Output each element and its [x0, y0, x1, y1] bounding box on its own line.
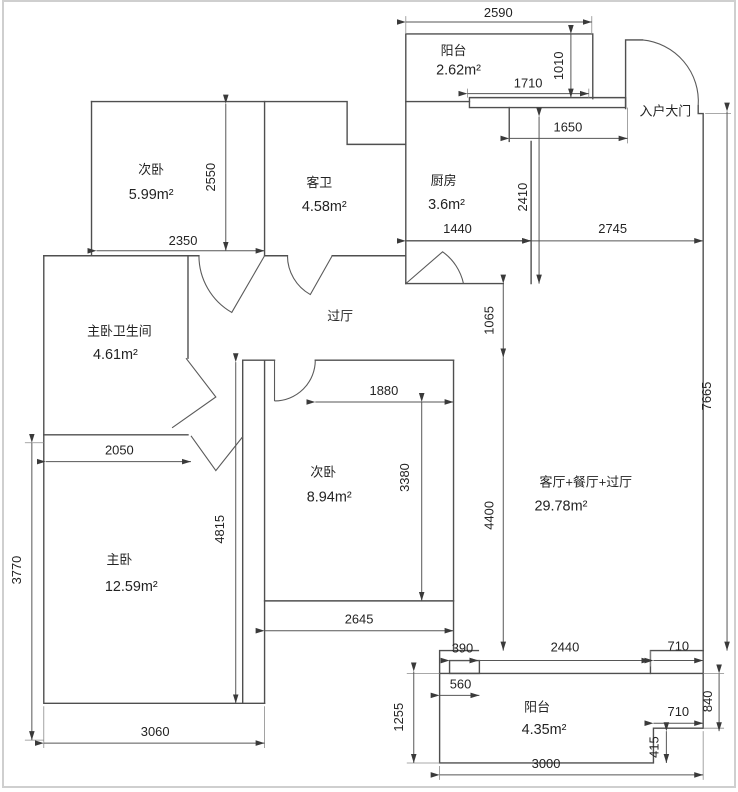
dim-notch-top: 710: [668, 639, 690, 654]
floor-plan-canvas: 2590 1710 1010 1650 2410 1440 2745 2350 …: [4, 2, 734, 786]
room-area-living: 29.78m²: [535, 498, 588, 514]
entrance-door-label: 入户大门: [640, 104, 692, 119]
room-label-living: 客厅+餐厅+过厅: [540, 474, 633, 489]
dim-middle-column-height: 4815: [212, 515, 227, 544]
dim-living-length: 4400: [481, 501, 496, 530]
dim-entry-to-right-wall: 2745: [598, 221, 627, 236]
room-area-master-bath: 4.61m²: [93, 347, 138, 363]
room-area-balcony-top: 2.62m²: [436, 63, 481, 79]
room-label-bedroom-top: 次卧: [138, 162, 164, 177]
dim-ledge-width: 390: [452, 641, 474, 656]
dim-kitchen-width: 1440: [443, 221, 472, 236]
dim-balcony2-bottom: 3000: [532, 756, 561, 771]
balcony-bottom-walls: [440, 673, 704, 763]
dim-entry-step: 1710: [514, 76, 543, 91]
floor-plan-page: 2590 1710 1010 1650 2410 1440 2745 2350 …: [2, 0, 736, 788]
master-bedroom-door: [191, 436, 243, 471]
room-area-balcony-bottom: 4.35m²: [522, 722, 567, 738]
room-label-balcony-top: 阳台: [441, 43, 467, 58]
dimension-labels: 2590 1710 1010 1650 2410 1440 2745 2350 …: [9, 5, 715, 771]
dim-bedroom2-width: 1880: [370, 383, 399, 398]
room-area-master-bedroom: 12.59m²: [105, 579, 158, 595]
room-label-guest-bath: 客卫: [306, 175, 332, 190]
dim-entry-width: 1650: [554, 119, 583, 134]
dim-notch-height: 840: [700, 691, 715, 713]
room-label-kitchen: 厨房: [431, 173, 457, 188]
bedroom-mid-door: [275, 360, 316, 401]
dim-balcony2-opening: 2440: [551, 640, 580, 655]
room-label-bedroom-mid: 次卧: [310, 465, 336, 480]
dim-bedroom2-bottom: 2645: [345, 612, 374, 627]
room-label-balcony-bottom: 阳台: [524, 699, 550, 714]
dimension-lines: [32, 22, 727, 775]
room-area-bedroom-mid: 8.94m²: [307, 489, 352, 505]
dim-hall-passage: 1065: [481, 306, 496, 335]
entrance-door-arc: [643, 40, 699, 106]
dim-balcony-depth: 1010: [551, 51, 566, 80]
room-area-bedroom-top: 5.99m²: [129, 187, 174, 203]
room-label-hallway: 过厅: [327, 308, 353, 323]
doors: [172, 40, 698, 471]
dim-bedroom1-depth: 2550: [203, 163, 218, 192]
dim-master-bottom-width: 3060: [141, 724, 170, 739]
dim-bedroom1-width: 2350: [169, 233, 198, 248]
room-area-guest-bath: 4.58m²: [302, 199, 347, 215]
dim-notch-small: 415: [646, 736, 661, 758]
walls: [44, 34, 703, 763]
dim-balcony2-inset: 560: [450, 676, 472, 691]
master-bath-door: [172, 358, 216, 428]
dim-notch-bottom: 710: [668, 704, 690, 719]
wall-stub: [450, 661, 480, 674]
room-label-master-bath: 主卧卫生间: [87, 323, 152, 338]
dim-right-side-total: 7665: [699, 382, 714, 411]
dim-master-left-height: 3770: [9, 556, 24, 585]
kitchen-door: [406, 252, 464, 284]
bedroom-top-door: [199, 256, 265, 313]
dim-balcony2-left-height: 1255: [391, 703, 406, 732]
dim-entry-hall-depth: 2410: [515, 183, 530, 212]
room-label-master-bedroom: 主卧: [106, 552, 132, 567]
room-area-kitchen: 3.6m²: [428, 197, 465, 213]
guest-bath-door: [287, 256, 332, 295]
dim-bedroom2-depth: 3380: [397, 463, 412, 492]
dim-top-balcony-width: 2590: [484, 5, 513, 20]
entry-step-band: [469, 98, 625, 108]
dim-master-top-width: 2050: [105, 443, 134, 458]
